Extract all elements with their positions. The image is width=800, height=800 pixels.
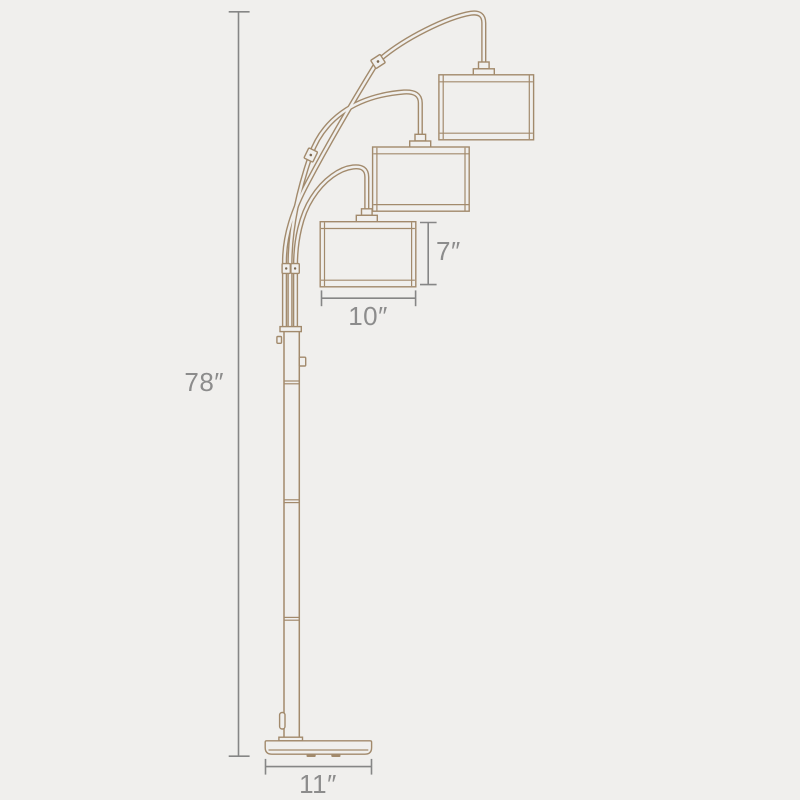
drum-shade-3 xyxy=(320,222,416,287)
arm-clamps xyxy=(282,264,299,274)
shade-height-label: 7″ xyxy=(436,237,476,265)
overall-height-label: 78″ xyxy=(150,368,224,396)
arm-joint-2 xyxy=(304,148,318,162)
shade-height-dimension-7 xyxy=(420,223,437,285)
base-body xyxy=(265,741,371,754)
base-foot-right xyxy=(331,754,340,757)
drum-shade-1 xyxy=(439,75,534,140)
drum-shade-2 xyxy=(373,147,470,211)
lamp-dimension-diagram: 78″ 7″ 10″ 11″ xyxy=(0,0,800,800)
height-dimension-78 xyxy=(229,12,250,756)
socket-2 xyxy=(410,134,431,147)
socket-1 xyxy=(473,62,494,76)
pole-joints xyxy=(284,381,299,620)
lamp-base xyxy=(265,737,371,757)
base-foot-left xyxy=(307,754,316,757)
pole-collar xyxy=(280,327,301,332)
shade-width-label: 10″ xyxy=(330,302,406,330)
base-width-label: 11″ xyxy=(280,770,356,798)
pole xyxy=(277,327,306,741)
lamp-line-art xyxy=(0,0,800,800)
pole-switch xyxy=(299,357,305,366)
cord-clip xyxy=(280,713,285,730)
pole-left-bump xyxy=(277,337,282,344)
